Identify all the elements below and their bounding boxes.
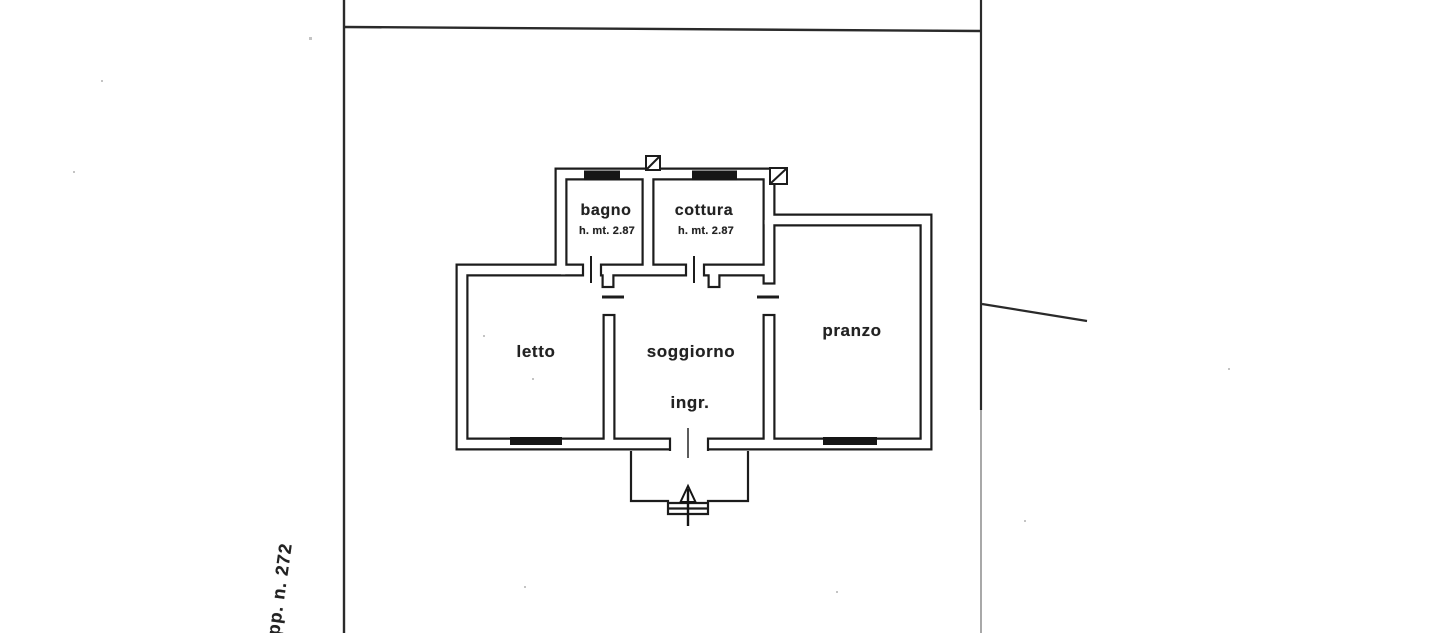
boundary-top-line <box>344 27 981 31</box>
bagno-window <box>584 171 620 181</box>
room-label-letto: letto <box>517 342 556 362</box>
flue-symbol-top-icon <box>646 156 660 170</box>
room-note-bagno: h. mt. 2.87 <box>579 225 635 237</box>
parcel-boundary-lines <box>344 0 1087 633</box>
flue-symbol-corner-icon <box>770 168 787 184</box>
entrance-arrow-icon <box>681 486 696 526</box>
room-label-cottura: cottura <box>675 202 733 220</box>
room-label-soggiorno: soggiorno <box>647 342 736 362</box>
cottura-window <box>692 171 737 181</box>
room-label-pranzo: pranzo <box>822 321 881 341</box>
pranzo-window <box>823 437 877 445</box>
room-label-ingresso: ingr. <box>671 393 710 413</box>
scanned-floor-plan-page: bagno h. mt. 2.87 cottura h. mt. 2.87 le… <box>0 0 1440 633</box>
entrance-porch <box>631 451 748 514</box>
letto-window <box>510 437 562 445</box>
boundary-branch-line <box>982 304 1087 321</box>
floor-plan-canvas <box>0 0 1440 633</box>
room-note-cottura: h. mt. 2.87 <box>678 225 734 237</box>
room-label-bagno: bagno <box>581 202 632 220</box>
